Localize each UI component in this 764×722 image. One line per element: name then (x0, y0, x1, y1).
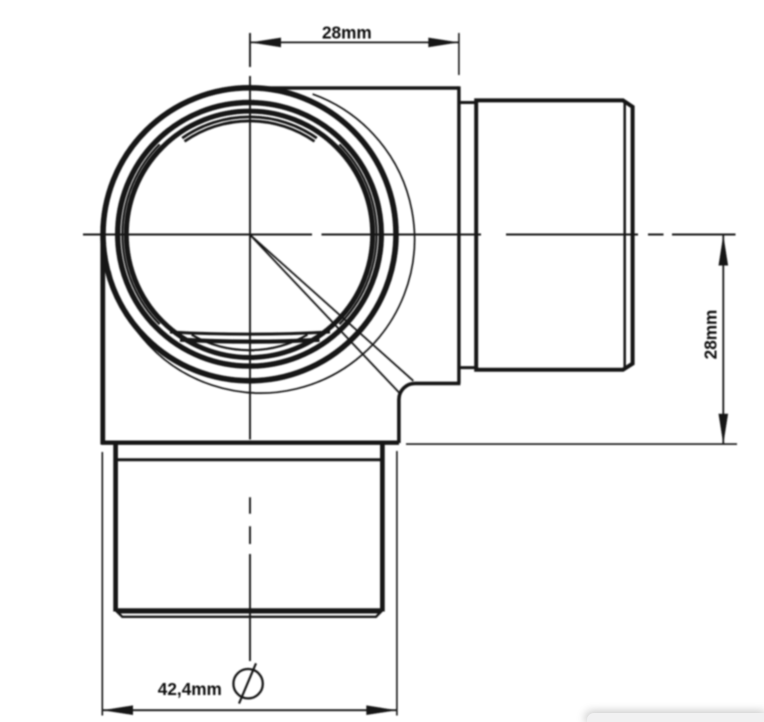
svg-text:28mm: 28mm (322, 23, 372, 43)
svg-text:28mm: 28mm (700, 310, 720, 360)
svg-text:42,4mm: 42,4mm (158, 679, 222, 699)
